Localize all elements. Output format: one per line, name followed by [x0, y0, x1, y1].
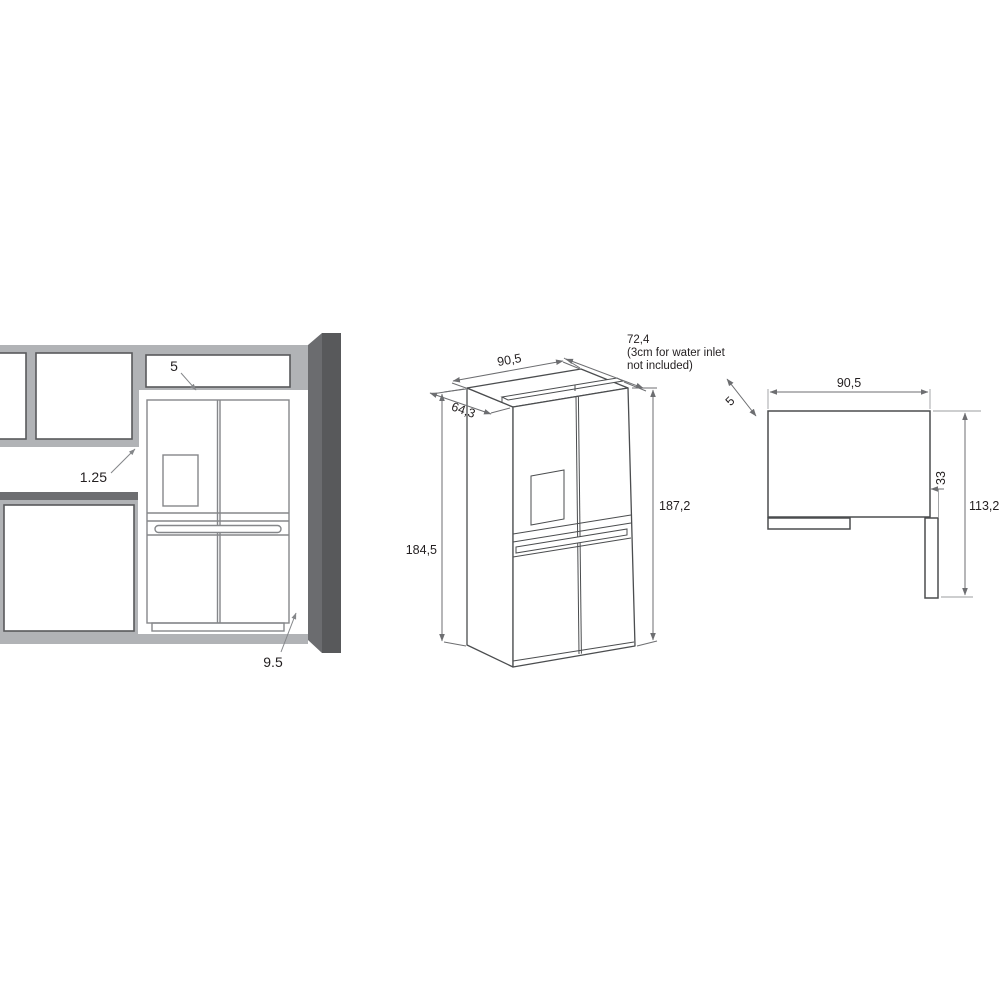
depth-note-line1: (3cm for water inlet [627, 347, 726, 359]
ext-line [637, 641, 657, 646]
height-total-label: 187,2 [659, 499, 690, 513]
refrigerator-front-view [147, 400, 289, 631]
width-label: 90,5 [496, 351, 522, 369]
ext-line [452, 383, 466, 388]
side-wall [308, 333, 341, 653]
iso-side-face [467, 388, 513, 667]
floor-line [0, 634, 308, 644]
cabinet-clearance-label: 1.25 [80, 469, 107, 485]
side-wall-edge [308, 333, 322, 653]
depth-door-open-label: 113,2 [969, 499, 999, 513]
depth-total-note: 72,4 (3cm for water inlet not included) [627, 334, 726, 372]
dimension-drawing-page: 5 1.25 9.5 [0, 0, 1000, 1000]
depth-total-label: 72,4 [627, 334, 650, 346]
isometric-view: 184,5 187,2 90,5 64,3 72,4 (3cm for wate… [406, 334, 726, 667]
base-cabinet-door [4, 505, 134, 631]
ext-line [432, 389, 464, 394]
height-body-label: 184,5 [406, 543, 437, 557]
top-view-closed-door [768, 518, 850, 529]
fridge-handle-rail [155, 526, 281, 533]
side-wall-face [322, 333, 341, 653]
dimension-drawing: 5 1.25 9.5 [0, 0, 1000, 1000]
top-view: 90,5 5 33 113,2 [723, 376, 1000, 598]
base-cabinet [0, 492, 138, 635]
iso-display-panel [531, 470, 564, 525]
top-width-label: 90,5 [837, 376, 861, 390]
ext-line [444, 642, 466, 646]
front-installation-view: 5 1.25 9.5 [0, 333, 341, 670]
rear-clearance-label: 5 [723, 394, 738, 409]
cabinet-door [0, 353, 26, 439]
top-view-fridge [768, 411, 938, 598]
fridge-plinth [152, 623, 284, 631]
countertop-edge [0, 492, 138, 500]
wall-clearance-label: 9.5 [263, 654, 283, 670]
depth-note-line2: not included) [627, 360, 693, 372]
door-projection-label: 33 [934, 471, 948, 485]
cabinet-door-over-fridge [146, 355, 290, 387]
cabinet-door [36, 353, 132, 439]
top-clearance-label: 5 [170, 358, 178, 374]
leader-cabinet-clearance [111, 449, 135, 473]
top-view-body [768, 411, 930, 517]
iso-front-face [513, 388, 635, 667]
top-view-open-door [925, 518, 938, 598]
